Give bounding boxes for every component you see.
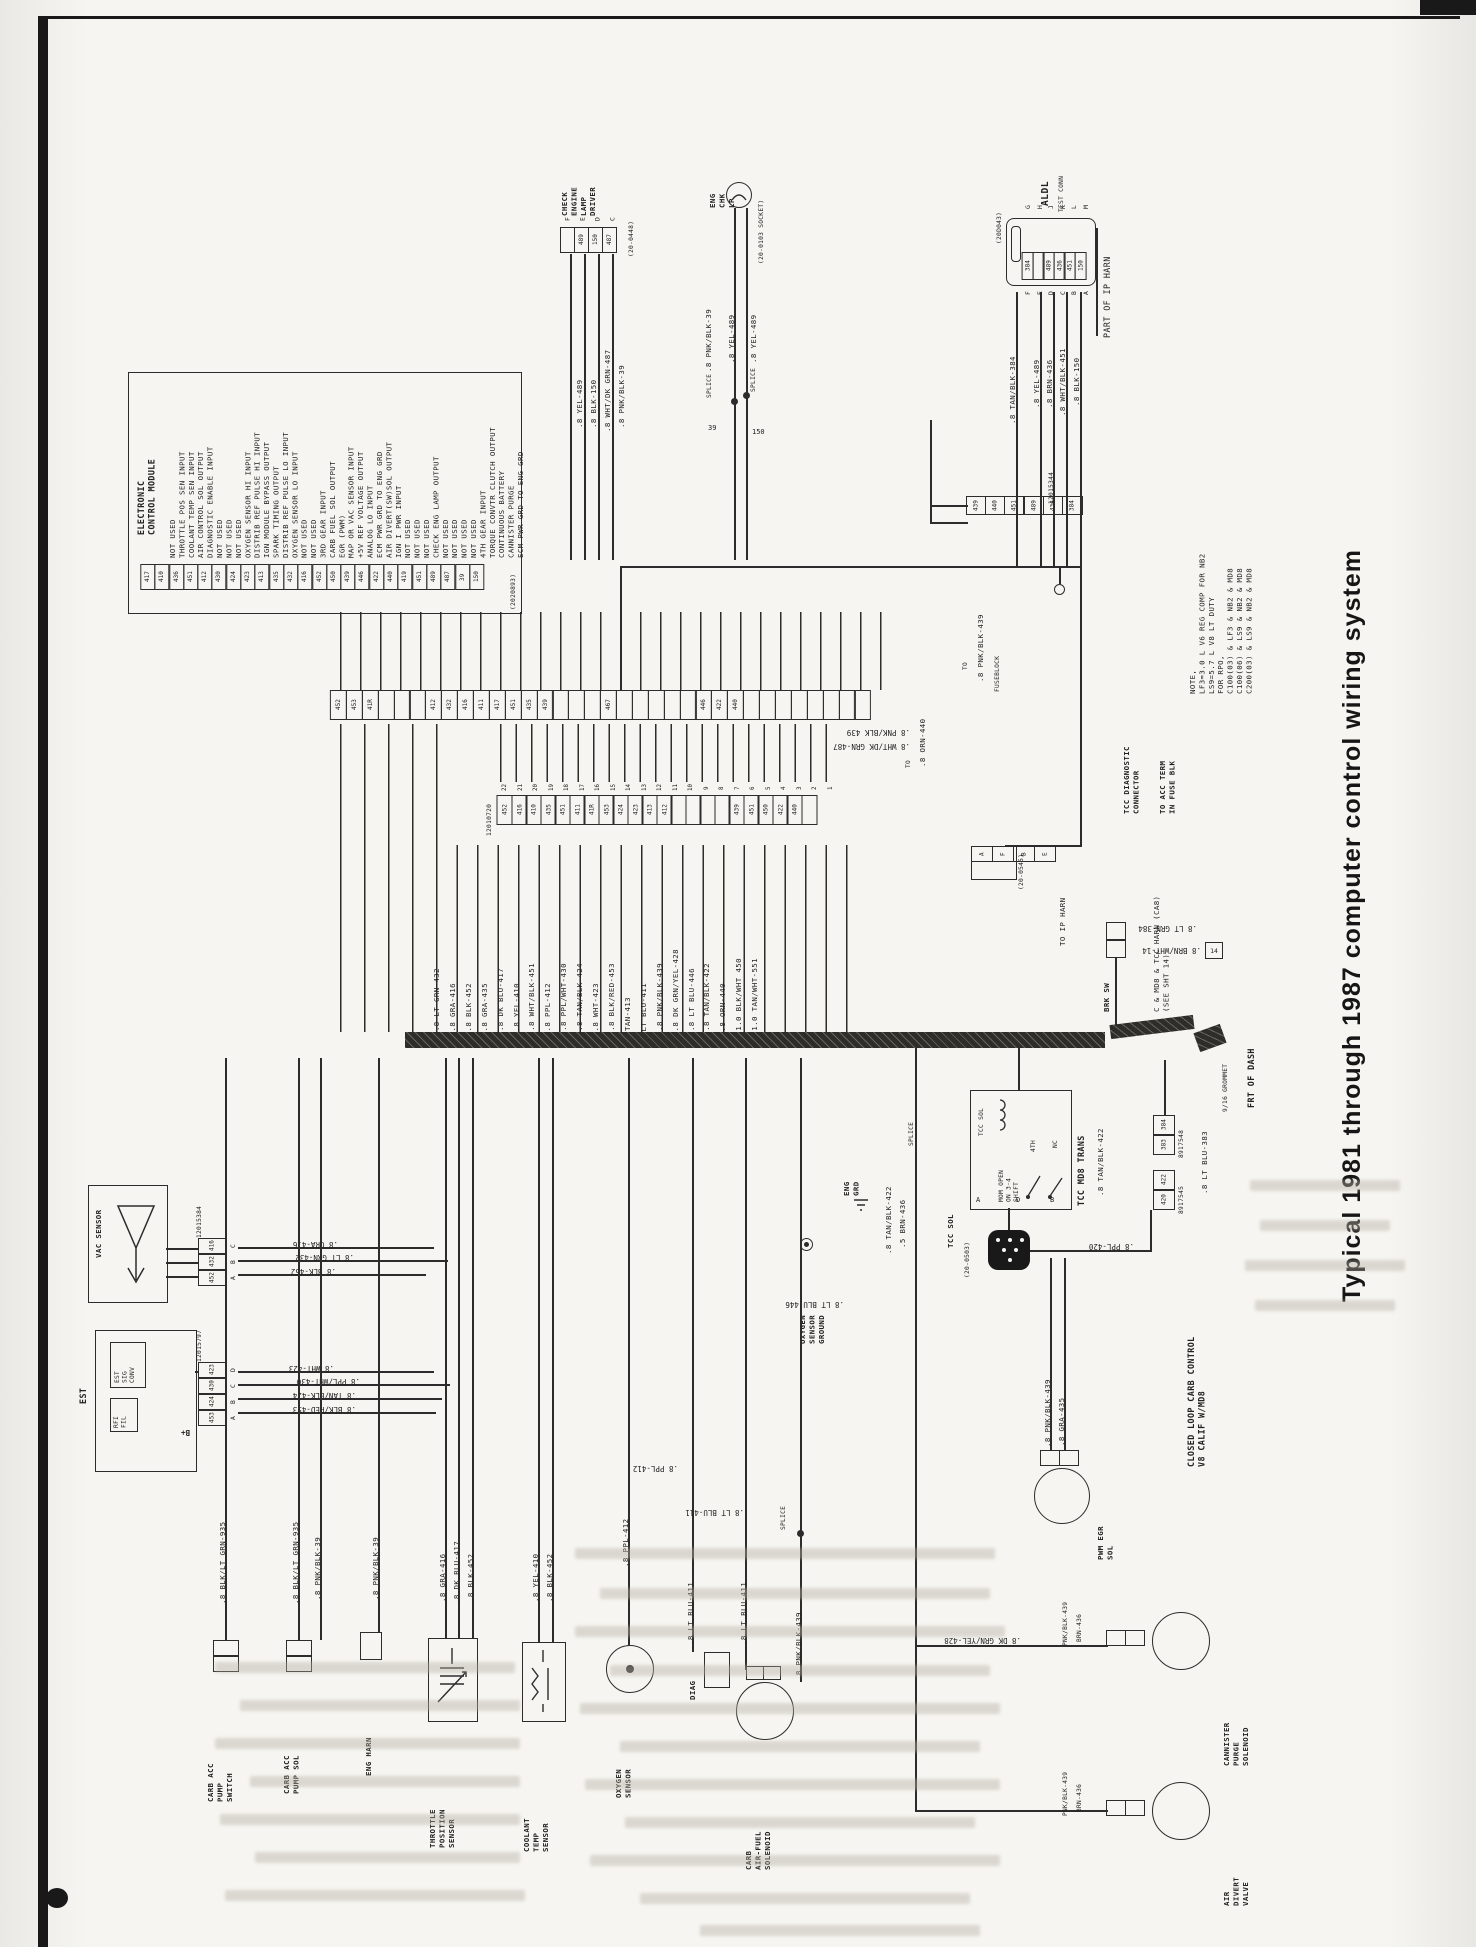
connector-cell: 439 xyxy=(966,496,986,515)
pin-number: 7 xyxy=(730,782,746,794)
harness-cell xyxy=(394,690,411,720)
egr-connector xyxy=(1040,1450,1080,1466)
wire-label: .8 BLK-452 xyxy=(466,1510,475,1602)
bulkhead-cell: 411 xyxy=(570,795,586,825)
firewall-band-segment xyxy=(1109,1015,1194,1039)
wire xyxy=(930,420,932,523)
wire-label: .8 PNK/BLK-39 xyxy=(313,1482,322,1600)
cmd8-harness-label: C & MD8 & TCC HARN (CA8) (SEE SHT 14) xyxy=(1152,880,1171,1012)
to-label: TO xyxy=(962,650,970,670)
pin-number: 10 xyxy=(683,782,699,794)
connector-id: (20-0503) xyxy=(964,1230,972,1278)
wire-label: BRN-436 xyxy=(1076,1572,1084,1642)
bulkhead-cell: 440 xyxy=(787,795,803,825)
wire-label: .8 PNK/BLK-439 xyxy=(976,598,985,682)
driver-pin-letters: FEDC xyxy=(560,212,620,226)
bleedthrough xyxy=(1255,1300,1395,1311)
bulkhead-cell: 424 xyxy=(613,795,629,825)
harness-cell xyxy=(854,690,871,720)
scanned-wiring-diagram-page: Typical 1981 through 1987 computer contr… xyxy=(0,0,1476,1947)
wire-label: LT BLU-411 xyxy=(639,983,648,1032)
bulkhead-cell: 451 xyxy=(555,795,571,825)
wire-label: .8 LT BLU-446 xyxy=(687,968,696,1031)
wire-label: .8 BLK-150 xyxy=(589,300,598,428)
harness-cell xyxy=(775,690,792,720)
mom-open-label: MOM OPEN ON 3-4 SHIFT xyxy=(998,1140,1021,1202)
bleedthrough xyxy=(610,1665,990,1676)
connector-cell: 383 xyxy=(1153,1135,1175,1155)
est-label: EST xyxy=(78,1368,89,1404)
wire-label: .8 PPL/WHT-430 xyxy=(250,1377,360,1386)
bulkhead-cell: 41R xyxy=(584,795,600,825)
pin-number: 6 xyxy=(745,782,761,794)
air-divert-valve-label: AIR DIVERT VALVE xyxy=(1222,1772,1250,1906)
bulkhead-cell: 435 xyxy=(541,795,557,825)
wire-label: .8 ORN-440 xyxy=(918,695,927,767)
connector-id: 8917548 xyxy=(1178,1112,1186,1158)
harness-cell: 411 xyxy=(473,690,490,720)
switch-contacts-icon xyxy=(1024,1160,1064,1200)
eyelet-center-icon xyxy=(804,1242,809,1247)
pin-letter: E xyxy=(575,212,590,226)
bleedthrough xyxy=(1245,1260,1405,1271)
connector-cell: 489 xyxy=(1024,496,1044,515)
harness-cell xyxy=(759,690,776,720)
pin-letter: F xyxy=(1022,286,1034,300)
tcc-sol-inner-label: TCC SOL xyxy=(978,1096,986,1136)
pwm-egr-sol-label: PWM EGR SOL xyxy=(1096,1448,1115,1560)
bleedthrough xyxy=(220,1814,520,1825)
wire xyxy=(746,208,748,560)
pin-letter: B xyxy=(228,1254,238,1270)
eng-harn-connector xyxy=(360,1632,382,1660)
wire-label: .5 BRN-436 xyxy=(898,1166,907,1248)
splice-label: SPLICE xyxy=(706,360,714,398)
harness-cell: 412 xyxy=(425,690,442,720)
wire xyxy=(166,1248,198,1250)
scan-smudge xyxy=(46,1888,68,1908)
wire-label: PNK/BLK-439 xyxy=(1062,1558,1070,1646)
connector-id: 12015384 xyxy=(196,1198,204,1238)
wire-number: 39 xyxy=(708,424,716,432)
driver-cell: 487 xyxy=(602,227,617,253)
bleedthrough xyxy=(575,1626,1005,1637)
wire xyxy=(1115,958,1117,1032)
harness-cell: 452 xyxy=(330,690,347,720)
bleedthrough xyxy=(575,1548,995,1559)
to-acc-term-label: TO ACC TERM IN FUSE BLK xyxy=(1158,712,1177,814)
splice-label: SPLICE xyxy=(780,1492,788,1530)
harness-cell xyxy=(568,690,585,720)
bulkhead-pin-numbers: 22212019181716151413121110987654321 xyxy=(497,782,839,794)
wire xyxy=(195,1371,198,1373)
connector-cell: 452 xyxy=(198,1270,226,1286)
driver-cell: 489 xyxy=(574,227,589,253)
pin-letter: M xyxy=(1080,200,1092,214)
connector-cell xyxy=(1059,1450,1079,1466)
ecm-pin-list: NOT USED THROTTLE POS SEN INPUT COOLANT … xyxy=(168,390,525,558)
pwm-egr-sol-symbol xyxy=(1034,1468,1090,1524)
pin-number: 20 xyxy=(528,782,544,794)
pin-letter: C xyxy=(228,1238,238,1254)
connector-id: 12015797 xyxy=(196,1322,204,1362)
harness-cell: 440 xyxy=(727,690,744,720)
bleedthrough xyxy=(700,1925,980,1936)
ecm-pin-cell: 451 xyxy=(412,564,427,590)
tcc-sol-label: TCC SOL xyxy=(946,1202,955,1248)
ecm-title: ELECTRONIC CONTROL MODULE xyxy=(136,385,157,535)
page-title: Typical 1981 through 1987 computer contr… xyxy=(1338,640,1367,1302)
ecm-pin-cell: 450 xyxy=(326,564,341,590)
pin-number: 8 xyxy=(714,782,730,794)
bulkhead-cell: 413 xyxy=(642,795,658,825)
pin-letter: H xyxy=(1034,200,1046,214)
harness-cell: 446 xyxy=(695,690,712,720)
wire xyxy=(1008,1208,1010,1230)
pin-letter: D xyxy=(1045,286,1057,300)
wire xyxy=(1150,1210,1152,1250)
connector-cell: 416 xyxy=(198,1238,226,1254)
wire-label: BRN-436 xyxy=(1076,1742,1084,1812)
ecm-pin-strip: 4174104364514124304244234134354324164524… xyxy=(140,564,508,590)
wire xyxy=(570,254,572,560)
wire-label: PNK/BLK-439 xyxy=(1062,1728,1070,1816)
pin-letter: L xyxy=(1068,200,1080,214)
bleedthrough xyxy=(215,1738,520,1749)
wire-label: .8 TAN/BLK-422 xyxy=(702,963,711,1031)
connector-12015344-row1: 439440451489436384 xyxy=(966,496,1046,515)
harness-cell: 439 xyxy=(537,690,554,720)
bleedthrough xyxy=(225,1890,525,1901)
connector-cell xyxy=(286,1640,312,1656)
ecm-pin-cell: 424 xyxy=(226,564,241,590)
grommet-label: 9/16 GROMMET xyxy=(1222,1040,1230,1112)
aldl-top-pin-letters: GHJKLM xyxy=(1022,200,1092,214)
bulkhead-cell xyxy=(671,795,687,825)
pin-letter: B xyxy=(1050,1196,1054,1204)
harness-cell xyxy=(616,690,633,720)
wire-label: 1.0 BLK/WHT 450 xyxy=(734,958,743,1031)
ecm-pin-cell: 487 xyxy=(440,564,455,590)
wire-label: .8 YEL-410 xyxy=(512,983,521,1032)
vac-sensor-symbol-icon xyxy=(112,1196,160,1292)
pin-number: 9 xyxy=(699,782,715,794)
harness-cell: 416 xyxy=(457,690,474,720)
bleedthrough xyxy=(585,1779,1000,1790)
connector-cell xyxy=(1125,1800,1145,1816)
aldl-label: ALDL xyxy=(1040,158,1052,206)
ecm-pin-cell: 452 xyxy=(312,564,327,590)
bleedthrough xyxy=(640,1893,970,1904)
wire-label: .8 LT GRN-432 xyxy=(250,1253,354,1262)
wire-label: .8 GRA-416 xyxy=(448,983,457,1032)
wire-label: .8 LT BLU-383 xyxy=(1200,1098,1209,1194)
scan-top-edge xyxy=(38,16,1460,19)
bulkhead-cell xyxy=(686,795,702,825)
wire-label: .8 GRA-416 xyxy=(250,1240,338,1249)
scan-left-edge xyxy=(38,16,48,1947)
pin-letter: B xyxy=(228,1394,238,1410)
ecm-pin-cell: 432 xyxy=(283,564,298,590)
wire xyxy=(915,1048,917,1810)
wire xyxy=(1064,1258,1066,1450)
wire-label: .8 PNK/BLK-39 xyxy=(371,1482,380,1600)
pin-letter: D xyxy=(228,1362,238,1378)
ecm-pin-cell: 417 xyxy=(140,564,155,590)
wire-label-bundle: .8 LT GRN-432.8 GRA-416.8 BLK-452.8 GRA-… xyxy=(432,949,760,1031)
bleedthrough xyxy=(620,1741,980,1752)
pin-letter: A xyxy=(1080,286,1092,300)
part-of-ip-harn-label: PART OF IP HARN xyxy=(1102,228,1113,338)
harness-cell: 422 xyxy=(711,690,728,720)
bleedthrough xyxy=(625,1817,975,1828)
harness-cell: 453 xyxy=(346,690,363,720)
wire xyxy=(1050,1258,1052,1450)
wire-label: .8 BLK/LT GRN-935 xyxy=(218,1462,227,1604)
driver-cell: 150 xyxy=(588,227,603,253)
wire-label: .8 GRA-435 xyxy=(480,983,489,1032)
wire-label: .8 WHT-423 xyxy=(591,983,600,1032)
wire-label: .8 TAN/BLK-424 xyxy=(575,963,584,1031)
connector-cell: 440 xyxy=(985,496,1005,515)
wire-label: .8 LT BLU-411 xyxy=(650,1508,744,1517)
connector-cell: 432 xyxy=(198,1254,226,1270)
pin-number: 14 xyxy=(621,782,637,794)
wire xyxy=(1059,566,1061,584)
wire xyxy=(620,566,1082,568)
wire xyxy=(166,1276,198,1278)
throttle-position-sensor-label: THROTTLE POSITION SENSOR xyxy=(428,1736,456,1848)
wire-label: .8 PPL-412 xyxy=(598,1464,678,1473)
harness-cell xyxy=(823,690,840,720)
est-connector: 423430424453 xyxy=(198,1362,226,1426)
wire-label: .8 BLK-452 xyxy=(545,1512,554,1602)
pin-number: 3 xyxy=(792,782,808,794)
harness-cell xyxy=(791,690,808,720)
bleedthrough xyxy=(1250,1180,1400,1191)
bleedthrough xyxy=(580,1703,1000,1714)
pin-letter: D xyxy=(1016,1196,1020,1204)
terminal-14-box: 14 xyxy=(1205,942,1223,959)
pin-number: 17 xyxy=(575,782,591,794)
bleedthrough xyxy=(240,1700,520,1711)
pin-number: 4 xyxy=(776,782,792,794)
pin-number: 1 xyxy=(823,782,839,794)
ecm-pin-cell: 446 xyxy=(354,564,369,590)
wire-label: .8 BLK-150 xyxy=(1072,300,1081,406)
harness-cell xyxy=(807,690,824,720)
connector-cell: 420 xyxy=(1153,1190,1175,1210)
harness-strip: 45245341R4124324164114174514354394674464… xyxy=(330,690,905,720)
wire xyxy=(620,566,622,690)
ecm-pin-cell: 489 xyxy=(426,564,441,590)
wire-label: .8 LT GRN-432 xyxy=(432,968,441,1031)
pin-number: 5 xyxy=(761,782,777,794)
harness-cell xyxy=(584,690,601,720)
pin-number: 22 xyxy=(497,782,513,794)
connector-cell xyxy=(360,1632,382,1660)
bleedthrough xyxy=(600,1588,990,1599)
bulkhead-cell: 416 xyxy=(512,795,528,825)
connector-8917545: 422420 xyxy=(1153,1170,1175,1210)
pin-number: 13 xyxy=(637,782,653,794)
connector-pin-dots xyxy=(996,1238,1000,1242)
wire-label: .8 YEL-489 xyxy=(727,255,736,363)
harness-cell xyxy=(839,690,856,720)
connector-cell xyxy=(213,1640,239,1656)
pin-letter: B xyxy=(1068,286,1080,300)
bulkhead-cell: 439 xyxy=(729,795,745,825)
pin-number: 16 xyxy=(590,782,606,794)
harness-cell xyxy=(680,690,697,720)
connector-id: (20-0545) xyxy=(1018,846,1026,890)
wire-label: .8 TAN/BLK-422 xyxy=(1096,1096,1105,1196)
wire xyxy=(1080,566,1082,846)
pin-letter: F xyxy=(560,212,575,226)
frt-of-dash-label: FRT OF DASH xyxy=(1246,1030,1257,1108)
ground-icon xyxy=(852,1198,870,1212)
wire-label: TAN-413 xyxy=(623,997,632,1031)
connector-id: 8917545 xyxy=(1178,1168,1186,1214)
bulkhead-cell: 412 xyxy=(657,795,673,825)
bulkhead-connector: 45241641043545141141R4534244234134124394… xyxy=(497,795,839,825)
wire-label: .8 BRN-436 xyxy=(1045,300,1054,408)
eyelet-terminal-icon xyxy=(1054,584,1065,595)
wire-label: .8 BLK/RED-453 xyxy=(250,1405,356,1414)
wire-label: .8 PPL/WHT-430 xyxy=(559,963,568,1031)
connector-20-0545 xyxy=(971,846,1017,880)
ecm-pin-cell: 451 xyxy=(183,564,198,590)
ecm-pin-cell: 430 xyxy=(211,564,226,590)
note-text: NOTE, LF3=3.0 L V6 REG COMP FOR NB2 LS9=… xyxy=(1188,478,1254,694)
connector-cell: 384 xyxy=(1062,496,1082,515)
bracket-line xyxy=(1096,228,1098,336)
vac-connector-pins: CBA xyxy=(228,1238,238,1286)
pin-letter: J xyxy=(1045,200,1057,214)
bulkhead-cell: 450 xyxy=(758,795,774,825)
wire-label: .8 YEL-410 xyxy=(531,1510,540,1602)
pin-number: 19 xyxy=(544,782,560,794)
connector-cell: 384 xyxy=(1153,1115,1175,1135)
wire-label: .8 TAN/BLK-384 xyxy=(1008,296,1017,424)
harness-cell xyxy=(664,690,681,720)
wire xyxy=(166,1262,198,1264)
ecm-pin-cell: 419 xyxy=(397,564,412,590)
harness-cell xyxy=(743,690,760,720)
diag-label: DIAG xyxy=(688,1656,697,1700)
wire-label: .8 DK GRN/YEL-428 xyxy=(671,949,680,1031)
pin-number: 12 xyxy=(652,782,668,794)
bulkhead-cell xyxy=(715,795,731,825)
pin-letter: C xyxy=(228,1378,238,1394)
connector-cell: 436 xyxy=(1043,496,1063,515)
air-divert-connector xyxy=(1106,1800,1146,1816)
bulkhead-cell xyxy=(802,795,818,825)
driver-connector: 489150487 xyxy=(560,227,620,253)
ecm-pin-cell: 422 xyxy=(369,564,384,590)
connector-cell: 430 xyxy=(198,1378,226,1394)
ecm-pin-cell: 39 xyxy=(455,564,470,590)
brake-switch-label: BRK SW xyxy=(1102,962,1111,1012)
to-label: TO xyxy=(905,748,913,768)
tcc-md8-trans-label: TCC MD8 TRANS xyxy=(1076,1094,1087,1206)
est-inner-text2: RFI FIL xyxy=(113,1400,128,1428)
vac-connector: 416432452 xyxy=(198,1238,226,1286)
eng-grd-label: ENG GRD xyxy=(842,1152,861,1196)
wire-label: .8 YEL-489 xyxy=(1032,300,1041,408)
bleedthrough xyxy=(250,1776,520,1787)
harness-cell xyxy=(378,690,395,720)
wire-label: .8 WHT/BLK-451 xyxy=(1058,294,1067,416)
ecm-pin-cell: 416 xyxy=(297,564,312,590)
connector-cell: 423 xyxy=(198,1362,226,1378)
wire-label: .8 ORN-440 xyxy=(718,983,727,1032)
pin-letter: G xyxy=(1022,200,1034,214)
connector-cell xyxy=(1040,1450,1060,1466)
bleedthrough xyxy=(215,1662,515,1673)
wire-label: .8 PPL-412 xyxy=(543,983,552,1032)
wire-number: 150 xyxy=(752,428,765,436)
pin-letter: A xyxy=(228,1410,238,1426)
wire xyxy=(1018,1048,1020,1090)
ecm-pin-cell: 150 xyxy=(469,564,484,590)
wire-label: .8 PNK/BLK-39 xyxy=(617,300,626,428)
wire xyxy=(930,522,968,524)
connector-cell: 451 xyxy=(1004,496,1024,515)
wire-label: .8 PNK/BLK-39 xyxy=(704,252,713,372)
connector-cell xyxy=(1106,1800,1126,1816)
pin-letter: C xyxy=(605,212,620,226)
4th-gear-label: 4TH xyxy=(1030,1130,1038,1152)
est-connector-pins: DCBA xyxy=(228,1362,238,1426)
cannister-purge-solenoid-label: CANNISTER PURGE SOLENOID xyxy=(1222,1604,1250,1766)
harness-cell: 432 xyxy=(441,690,458,720)
wire-label: .8 BLK-452 xyxy=(250,1267,336,1276)
connector-cell xyxy=(1106,1630,1126,1646)
splice-dot-icon xyxy=(797,1530,804,1537)
connector-8917548: 384383 xyxy=(1153,1115,1175,1155)
splice-dot-icon xyxy=(731,398,738,405)
splice-label: SPLICE xyxy=(750,354,758,392)
harness-cell xyxy=(552,690,569,720)
tcc-diagnostic-connector-label: TCC DIAGNOSTIC CONNECTOR xyxy=(1122,712,1141,814)
wire-label: .8 TAN/BLK-424 xyxy=(250,1391,356,1400)
wire xyxy=(1164,1060,1166,1115)
harness-cell xyxy=(409,690,426,720)
aldl-cells: 384489436451150 xyxy=(1022,252,1092,280)
bulkhead-cell: 422 xyxy=(773,795,789,825)
ecm-pin-cell: 410 xyxy=(154,564,169,590)
wire-label: .8 WHT/BLK-451 xyxy=(527,963,536,1031)
aldl-id: (20D043) xyxy=(996,186,1004,244)
wire-label: 1.0 TAN/WHT-551 xyxy=(750,958,759,1031)
bulkhead-cell: 451 xyxy=(744,795,760,825)
ecm-pin-cell: 435 xyxy=(269,564,284,590)
harness-cell: 451 xyxy=(505,690,522,720)
vac-sensor-label: VAC SENSOR xyxy=(94,1188,103,1258)
driver-connector-id: (20-0448) xyxy=(628,195,636,257)
check-engine-lamp-driver-label: CHECK ENGINE LAMP DRIVER xyxy=(560,150,598,216)
pin-number: 2 xyxy=(807,782,823,794)
b-plus-terminal: B+ xyxy=(172,1428,190,1437)
scan-corner-mark xyxy=(1420,0,1476,15)
wire-label: .8 YEL-489 xyxy=(575,300,584,428)
wire-label: .8 BLK/RED-453 xyxy=(607,963,616,1031)
air-divert-valve-symbol xyxy=(1152,1782,1210,1840)
cannister-purge-solenoid-symbol xyxy=(1152,1612,1210,1670)
cannister-connector xyxy=(1106,1630,1146,1646)
coolant-temp-sensor-label: COOLANT TEMP SENSOR xyxy=(522,1744,550,1852)
